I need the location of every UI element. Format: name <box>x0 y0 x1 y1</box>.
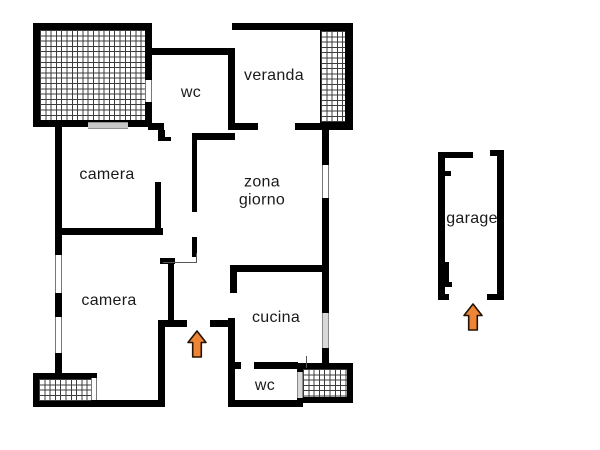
wall <box>322 198 329 313</box>
room-label-cucina: cucina <box>252 309 300 327</box>
wall <box>254 362 298 369</box>
wall <box>158 320 165 407</box>
wall <box>192 133 235 140</box>
terrace-hatch <box>33 23 152 127</box>
wall <box>233 265 329 272</box>
window <box>55 255 62 293</box>
window <box>88 122 128 129</box>
room-label-zona-giorno: zona giorno <box>239 174 285 211</box>
wall <box>487 294 504 300</box>
wall <box>55 293 62 317</box>
veranda-hatch <box>320 30 346 123</box>
door-line <box>163 262 197 263</box>
wall <box>228 362 241 369</box>
wall <box>192 140 197 212</box>
wall <box>232 23 353 30</box>
wall <box>228 48 235 130</box>
garage-entrance-arrow-icon <box>463 303 483 331</box>
wall <box>346 23 353 130</box>
window <box>91 378 97 400</box>
window <box>55 317 62 353</box>
balcony-hatch <box>297 363 353 403</box>
entrance-arrow-icon <box>187 330 207 358</box>
window <box>322 165 329 198</box>
wall <box>438 152 473 158</box>
wall <box>228 400 303 407</box>
wall <box>163 137 171 141</box>
window <box>322 313 329 348</box>
room-label-camera-bottom: camera <box>81 292 136 310</box>
wall <box>97 400 165 407</box>
balcony-hatch <box>33 373 97 407</box>
wall <box>438 294 449 300</box>
room-label-veranda: veranda <box>244 67 304 85</box>
entrance-arrow-shape <box>188 331 206 357</box>
wall <box>497 150 504 300</box>
room-label-wc-bottom: wc <box>255 377 275 395</box>
room-label-garage: garage <box>446 210 498 228</box>
room-label-camera-top: camera <box>79 166 134 184</box>
room-label-wc-top: wc <box>181 84 201 102</box>
wall <box>55 127 62 255</box>
wall <box>152 48 235 55</box>
wall <box>228 123 258 130</box>
wall <box>445 171 451 176</box>
tick-line <box>306 356 307 368</box>
wall <box>490 150 504 156</box>
wall <box>148 123 164 130</box>
floor-plan: wc veranda camera zona giorno camera cuc… <box>0 0 600 450</box>
window <box>145 80 152 102</box>
garage-entrance-arrow-shape <box>464 304 482 330</box>
window <box>297 372 303 398</box>
wall <box>295 123 353 130</box>
wall <box>60 228 163 235</box>
room-label-zona-line1: zona <box>244 174 280 191</box>
wall <box>322 130 329 165</box>
wall <box>322 348 329 365</box>
room-label-zona-line2: giorno <box>239 192 285 209</box>
wall <box>168 264 174 322</box>
wall <box>445 282 452 287</box>
